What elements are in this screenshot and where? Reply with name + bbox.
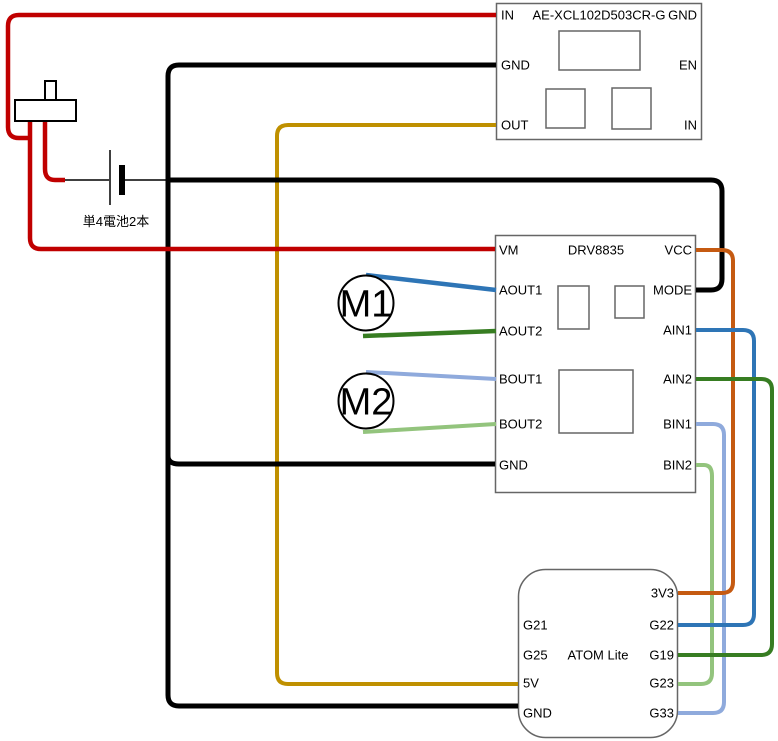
motor1-label: M1 bbox=[340, 284, 393, 326]
driver-pin-mode: MODE bbox=[653, 283, 692, 298]
mcu-pin-g23: G23 bbox=[649, 676, 674, 691]
motor1-symbol: M1 bbox=[339, 276, 394, 331]
regulator-pin-gnd-right: GND bbox=[668, 8, 697, 23]
circuit-diagram-canvas: AE-XCL102D503CR-G IN GND OUT GND EN IN D… bbox=[0, 0, 778, 741]
driver-pin-bin1: BIN1 bbox=[663, 417, 692, 432]
mcu-title: ATOM Lite bbox=[568, 648, 629, 663]
driver-pin-ain2: AIN2 bbox=[663, 372, 692, 387]
driver-pin-gnd: GND bbox=[499, 458, 528, 473]
driver-pin-bin2: BIN2 bbox=[663, 458, 692, 473]
regulator-pad-left-shape bbox=[546, 89, 585, 128]
regulator-pin-in-right: IN bbox=[684, 118, 697, 133]
driver-pin-aout1: AOUT1 bbox=[499, 283, 542, 298]
regulator-pin-gnd-left: GND bbox=[501, 58, 530, 73]
driver-title: DRV8835 bbox=[568, 243, 624, 258]
switch-toggle-shape bbox=[45, 81, 56, 100]
mcu-pin-3v3: 3V3 bbox=[651, 586, 674, 601]
mcu-pin-g21: G21 bbox=[523, 618, 548, 633]
battery-negative-plate bbox=[119, 165, 125, 195]
driver-pin-ain1: AIN1 bbox=[663, 323, 692, 338]
mcu-pin-g22: G22 bbox=[649, 618, 674, 633]
driver-pad-shape bbox=[615, 286, 644, 318]
driver-pin-bout2: BOUT2 bbox=[499, 417, 542, 432]
regulator-pad-right-shape bbox=[612, 88, 651, 129]
mcu-pin-gnd: GND bbox=[523, 706, 552, 721]
mcu-pin-g19: G19 bbox=[649, 648, 674, 663]
regulator-ic-shape bbox=[559, 31, 640, 70]
mcu-component: ATOM Lite G21 G25 5V GND 3V3 G22 G19 G23… bbox=[519, 570, 678, 738]
battery-label: 単4電池2本 bbox=[83, 214, 149, 229]
driver-pin-vm: VM bbox=[499, 243, 519, 258]
driver-cap-shape bbox=[558, 286, 589, 329]
driver-body bbox=[496, 236, 696, 493]
driver-pin-aout2: AOUT2 bbox=[499, 324, 542, 339]
regulator-pin-in-left: IN bbox=[501, 8, 514, 23]
circuit-diagram: AE-XCL102D503CR-G IN GND OUT GND EN IN D… bbox=[0, 0, 778, 741]
mcu-pin-5v: 5V bbox=[523, 676, 539, 691]
regulator-pin-out-left: OUT bbox=[501, 118, 529, 133]
driver-component: DRV8835 VM AOUT1 AOUT2 BOUT1 BOUT2 GND V… bbox=[496, 236, 696, 493]
mcu-pin-g33: G33 bbox=[649, 706, 674, 721]
switch-body-shape bbox=[15, 100, 76, 121]
mcu-pin-g25: G25 bbox=[523, 648, 548, 663]
motor2-symbol: M2 bbox=[339, 374, 394, 429]
driver-pin-bout1: BOUT1 bbox=[499, 372, 542, 387]
regulator-component: AE-XCL102D503CR-G IN GND OUT GND EN IN bbox=[497, 4, 702, 140]
driver-pin-vcc: VCC bbox=[665, 243, 692, 258]
regulator-pin-en-right: EN bbox=[679, 58, 697, 73]
motor2-label: M2 bbox=[340, 382, 393, 424]
regulator-title: AE-XCL102D503CR-G bbox=[533, 8, 666, 23]
driver-ic-shape bbox=[559, 370, 633, 433]
